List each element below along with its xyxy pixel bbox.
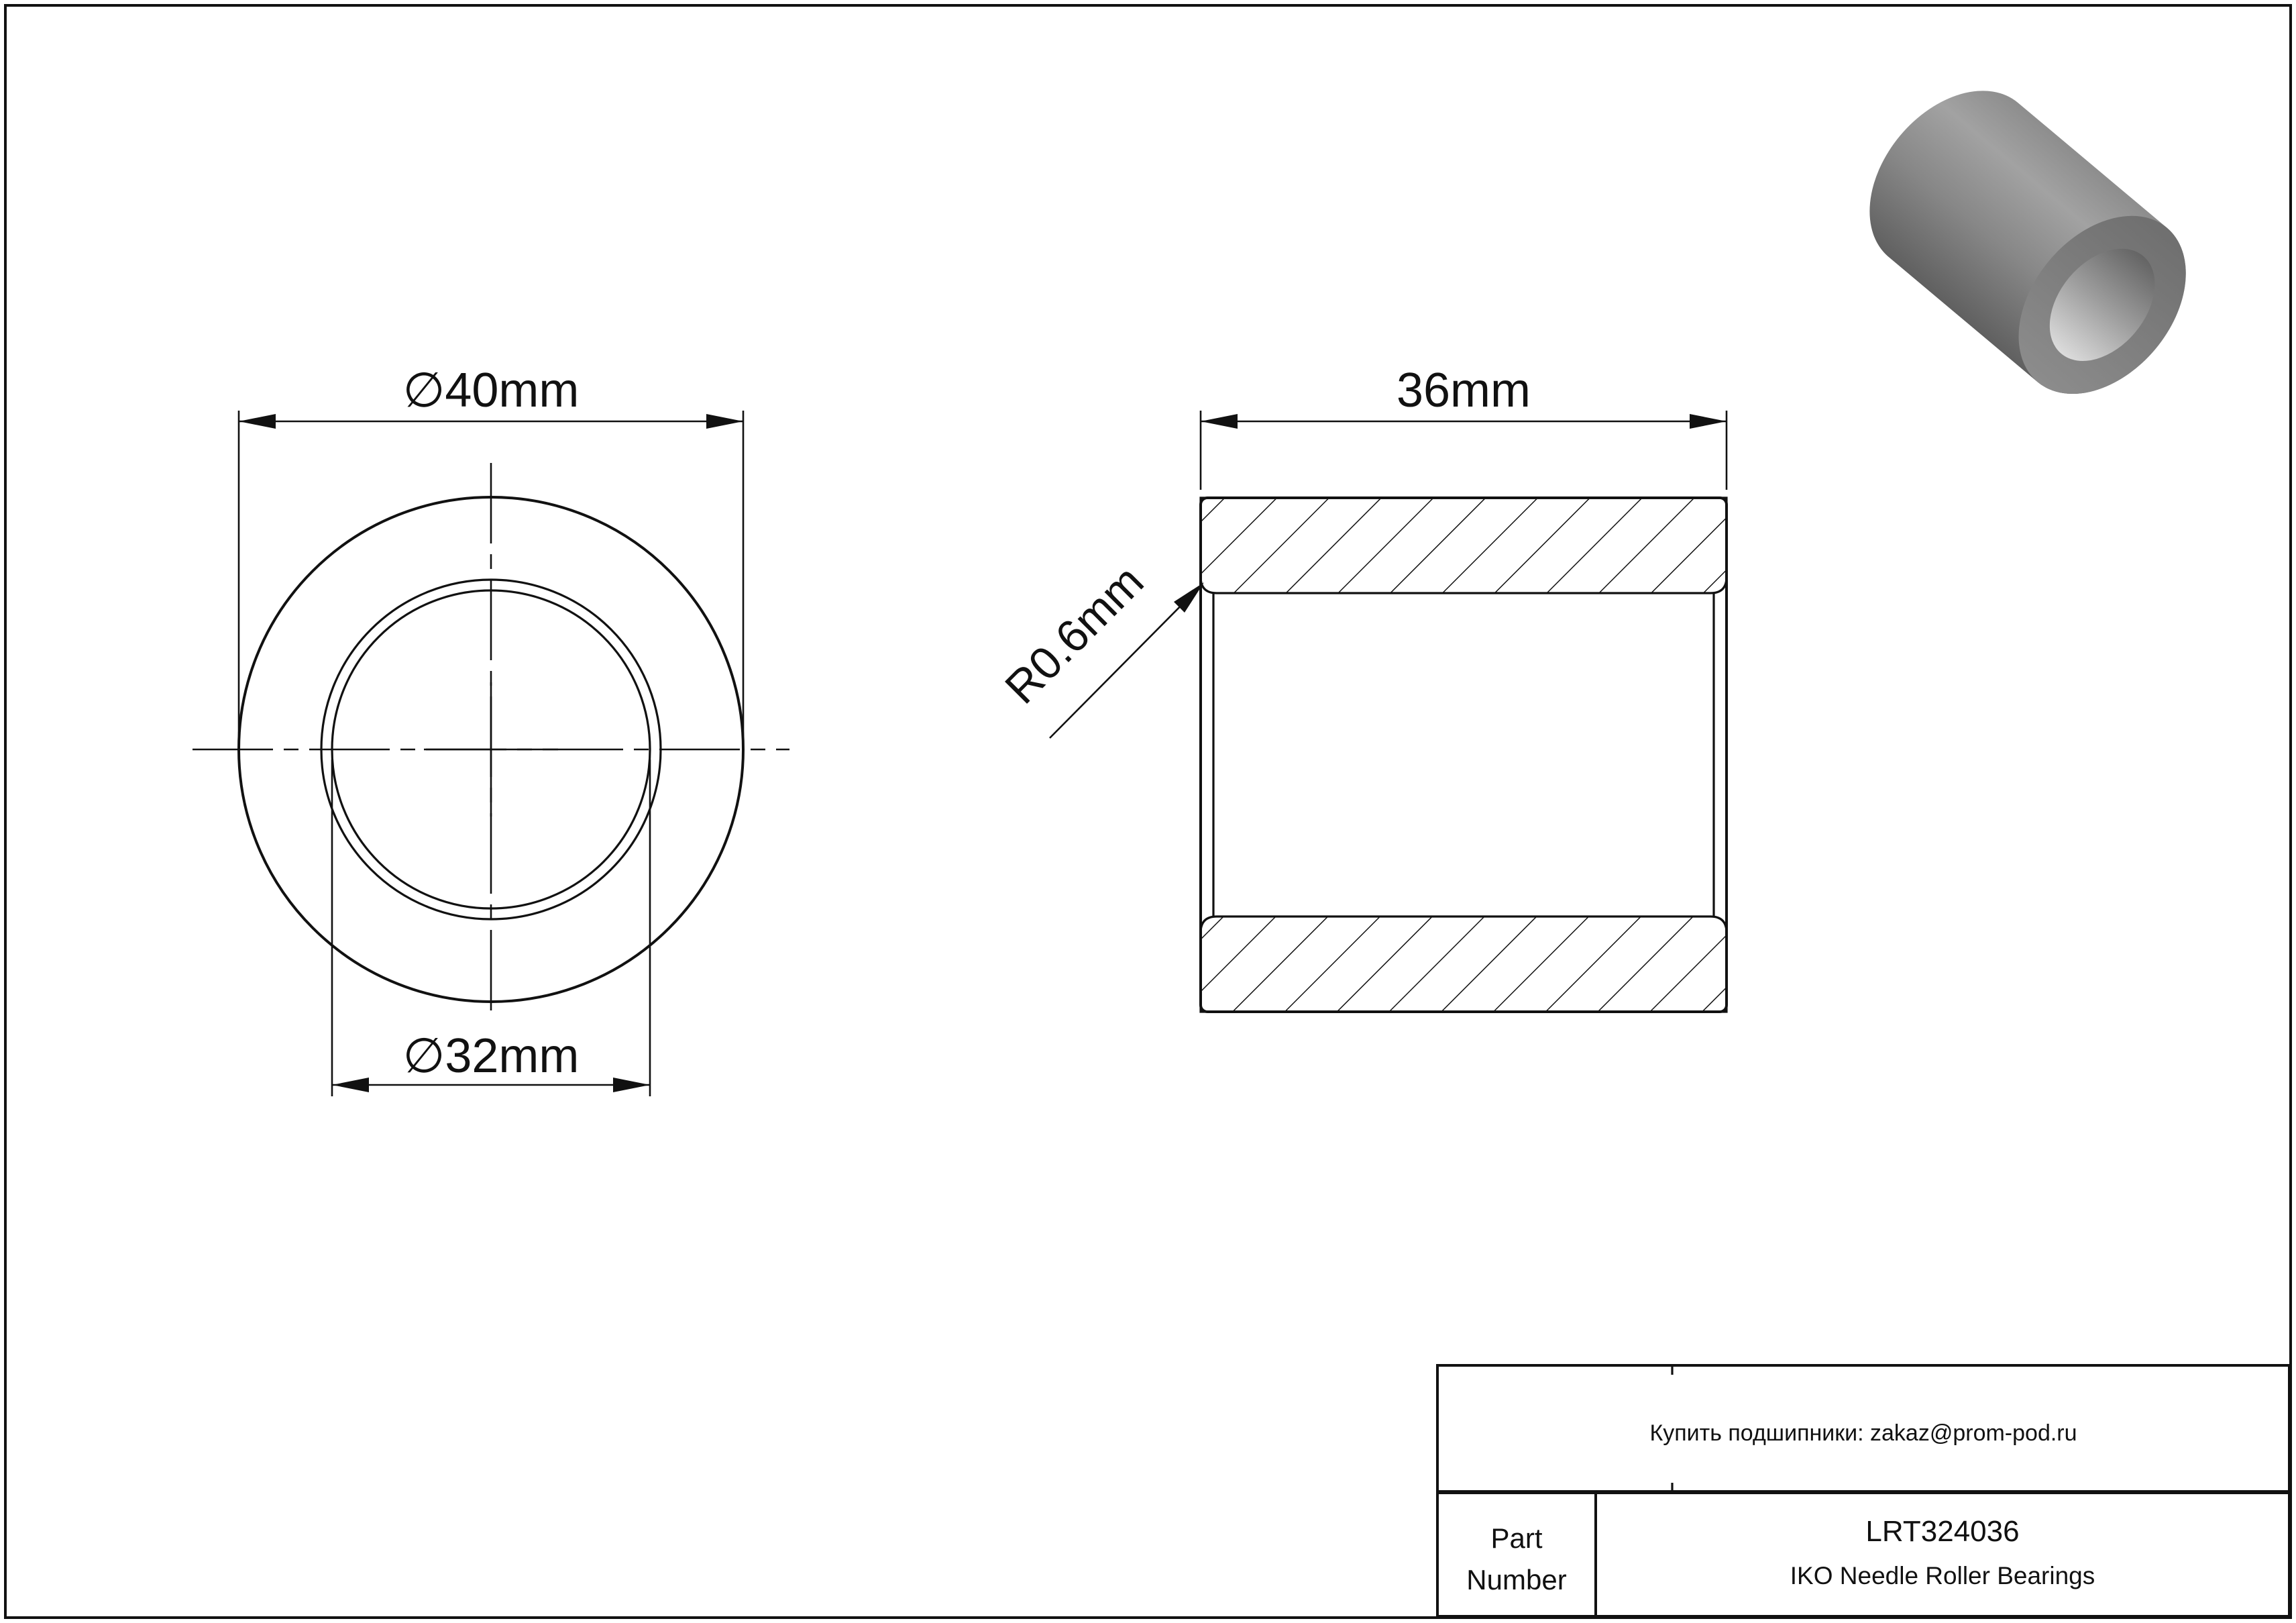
title-block: Купить подшипники: zakaz@prom-pod.ru Par… [1437, 1365, 2289, 1616]
arrowhead-right [706, 414, 743, 429]
product-line: IKO Needle Roller Bearings [1790, 1562, 2095, 1589]
outer-diameter-label: ∅40mm [403, 364, 580, 417]
arrowhead-left [239, 414, 276, 429]
fillet-radius-label: R0.6mm [995, 556, 1153, 713]
drawing-page: ∅40mm ∅32mm 36mm [0, 0, 2296, 1623]
part-number-value: LRT324036 [1865, 1515, 2019, 1548]
front-view: ∅40mm ∅32mm [193, 364, 789, 1096]
top-ring-section-hatched [1201, 498, 1727, 593]
section-view: 36mm R0.6mm [995, 364, 1727, 1012]
contact-line: Купить подшипники: zakaz@prom-pod.ru [1649, 1420, 2077, 1446]
arrowhead-right [1690, 414, 1727, 429]
part-number-label-line1: Part [1490, 1522, 1542, 1554]
bore-diameter-label: ∅32mm [403, 1029, 580, 1083]
part-number-label-line2: Number [1466, 1564, 1566, 1595]
dimension-width: 36mm [1201, 364, 1727, 490]
arrowhead-left [332, 1078, 369, 1092]
technical-drawing-canvas: ∅40mm ∅32mm 36mm [0, 0, 2296, 1623]
bottom-ring-section-hatched [1201, 917, 1727, 1012]
fillet-radius-callout: R0.6mm [995, 556, 1204, 738]
width-label: 36mm [1397, 364, 1531, 417]
arrowhead-right [613, 1078, 650, 1092]
arrowhead-left [1201, 414, 1238, 429]
part-3d-render [1836, 58, 2220, 427]
